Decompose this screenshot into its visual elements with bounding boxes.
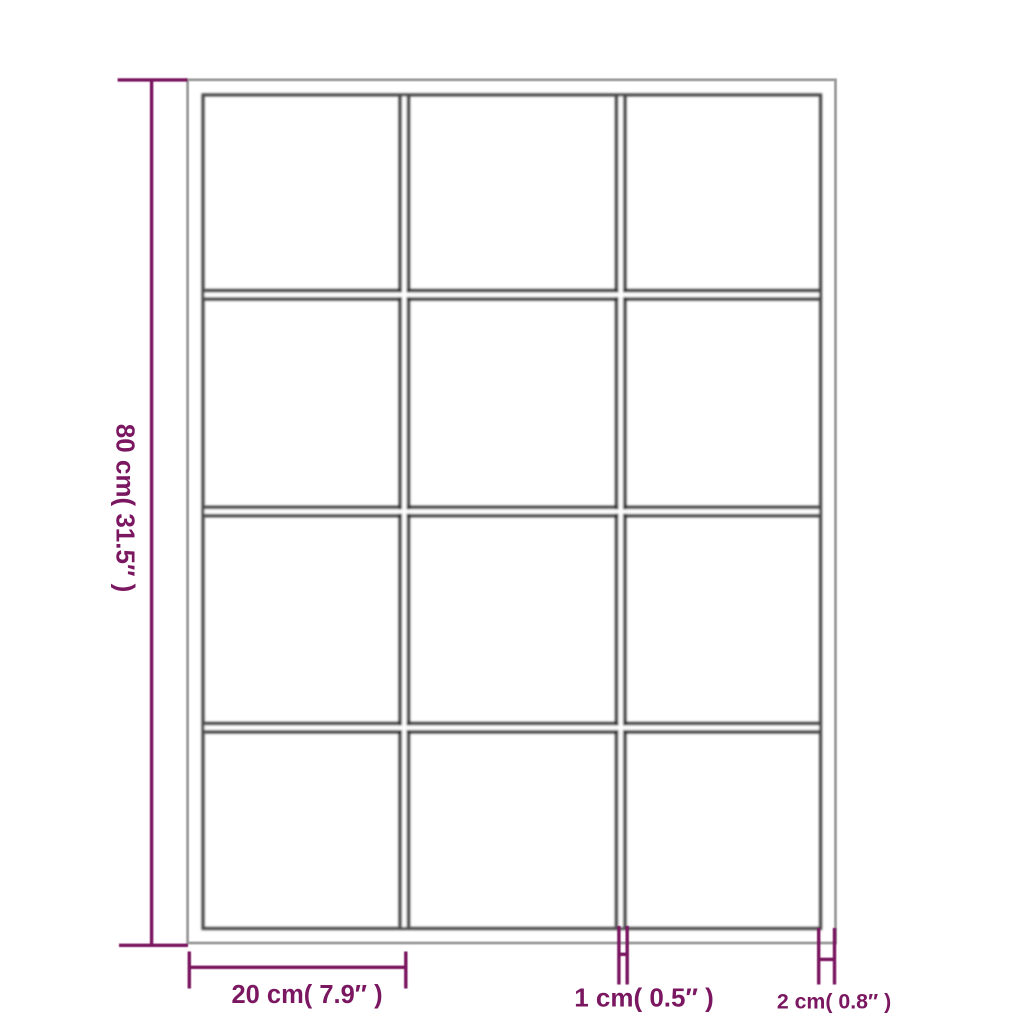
svg-text:1 cm( 0.5″ ): 1 cm( 0.5″ )	[574, 982, 714, 1012]
svg-text:80 cm( 31.5″ ): 80 cm( 31.5″ )	[110, 424, 140, 593]
svg-text:20 cm( 7.9″ ): 20 cm( 7.9″ )	[231, 981, 382, 1009]
svg-text:2 cm( 0.8″ ): 2 cm( 0.8″ )	[777, 990, 891, 1014]
